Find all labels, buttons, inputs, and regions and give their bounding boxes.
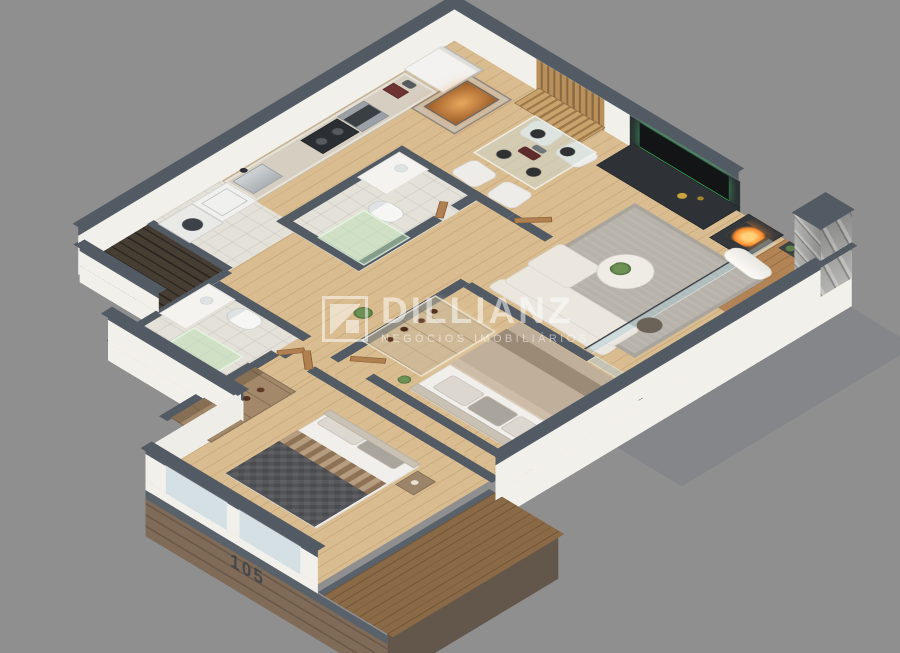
apartment-3d-scene: 105 [115, 41, 850, 484]
floor-plan-render: 105 [0, 0, 900, 653]
